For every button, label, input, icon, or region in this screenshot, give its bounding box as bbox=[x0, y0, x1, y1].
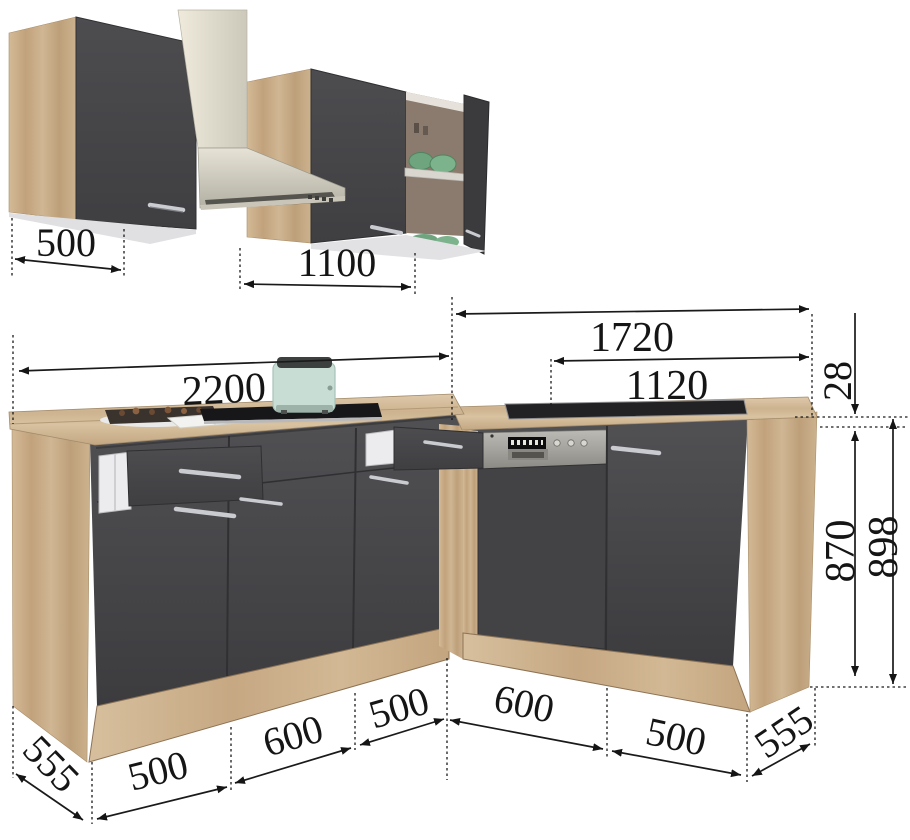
dishwasher-panel bbox=[478, 464, 607, 649]
dishwasher-knob bbox=[554, 440, 560, 446]
dim-label-carcass-height: 870 bbox=[820, 520, 862, 583]
dim-label-right-counter-width: 1120 bbox=[626, 365, 708, 407]
green-bowl bbox=[430, 155, 456, 173]
dim-label-upper-run-width: 1100 bbox=[298, 243, 377, 283]
green-bowl bbox=[409, 153, 433, 170]
dim-label-right-total-width: 1720 bbox=[590, 317, 674, 359]
toaster bbox=[273, 357, 335, 414]
dishwasher bbox=[478, 430, 607, 649]
dim-label-left-counter-width: 2200 bbox=[181, 367, 267, 413]
dishwasher-knob bbox=[568, 440, 574, 446]
dishwasher-knob bbox=[581, 440, 587, 446]
kitchen-dimension-diagram: 500 1100 2200 1720 1120 28 870 898 555 5… bbox=[0, 0, 910, 840]
right-end-panel bbox=[747, 412, 817, 712]
open-drawer-corner bbox=[366, 427, 483, 470]
dim-label-wall-cabinet-width: 500 bbox=[36, 223, 96, 263]
dim-label-counter-thickness: 28 bbox=[818, 361, 858, 401]
left-end-panel bbox=[12, 424, 90, 762]
wall-cabinet-left bbox=[9, 17, 196, 244]
dim-label-total-height: 898 bbox=[863, 516, 905, 579]
